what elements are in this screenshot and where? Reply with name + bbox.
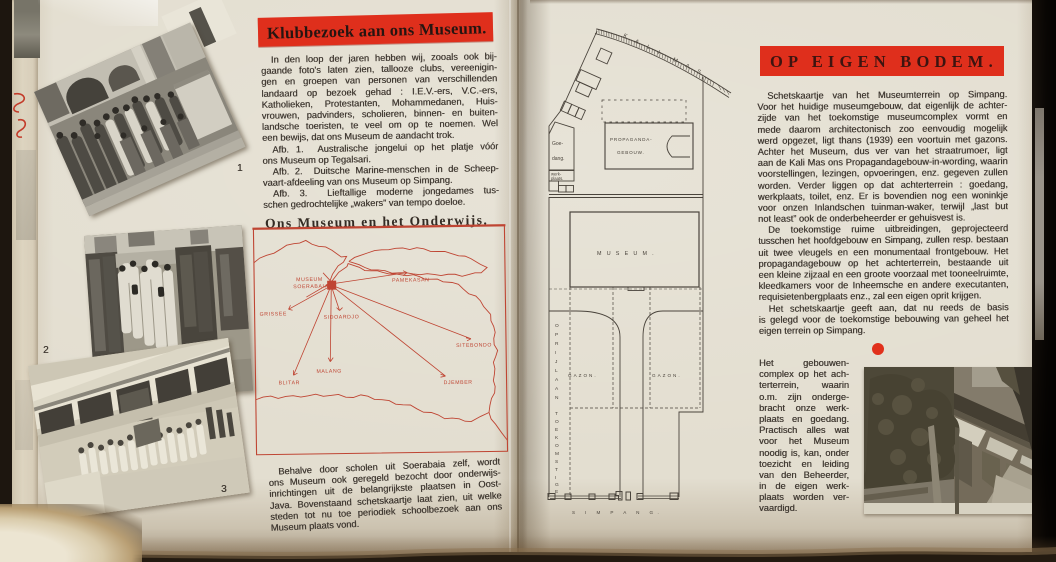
svg-text:M: M	[555, 451, 559, 457]
svg-text:MALANG: MALANG	[316, 369, 342, 375]
svg-text:GAZON.: GAZON.	[568, 373, 598, 378]
svg-text:K: K	[555, 435, 559, 441]
svg-text:MUSEUM.: MUSEUM.	[597, 251, 659, 257]
svg-text:A: A	[555, 377, 559, 383]
svg-text:J: J	[555, 359, 558, 365]
svg-text:I: I	[555, 475, 556, 481]
svg-text:A: A	[555, 386, 559, 392]
svg-text:K A L I M A S: K A L I M A S	[622, 33, 705, 78]
svg-text:SOERABAIA: SOERABAIA	[293, 284, 328, 290]
svg-text:R: R	[555, 341, 559, 347]
svg-text:GAZON.: GAZON.	[652, 373, 682, 378]
svg-text:Goe-: Goe-	[552, 141, 563, 147]
svg-text:GEBOUW.: GEBOUW.	[617, 150, 645, 155]
svg-text:E: E	[555, 489, 558, 495]
svg-text:O: O	[555, 323, 559, 329]
svg-text:P: P	[555, 332, 558, 338]
svg-text:GRISSEE: GRISSEE	[260, 311, 287, 317]
svg-text:T: T	[555, 467, 558, 473]
svg-text:O: O	[555, 419, 559, 425]
svg-text:T: T	[555, 411, 558, 417]
svg-text:I: I	[555, 350, 556, 356]
svg-text:PROPAGANDA-: PROPAGANDA-	[610, 137, 652, 142]
svg-text:O: O	[555, 443, 559, 449]
svg-text:N: N	[555, 395, 559, 401]
svg-text:dang.: dang.	[552, 156, 565, 162]
svg-text:SIDOARDJO: SIDOARDJO	[324, 314, 360, 320]
svg-text:BLITAR: BLITAR	[279, 380, 300, 386]
svg-text:L: L	[555, 368, 558, 374]
svg-text:SITEBONDO: SITEBONDO	[456, 342, 492, 349]
svg-text:DJEMBER: DJEMBER	[444, 380, 473, 386]
svg-text:G: G	[555, 482, 559, 488]
svg-text:E: E	[555, 427, 558, 433]
svg-text:PAMEKASAN: PAMEKASAN	[392, 277, 429, 284]
svg-text:MUSEUM: MUSEUM	[296, 277, 323, 283]
svg-text:S: S	[555, 459, 558, 465]
svg-text:plaats.: plaats.	[551, 176, 563, 181]
svg-text:S I M P A N G.: S I M P A N G.	[572, 510, 663, 515]
